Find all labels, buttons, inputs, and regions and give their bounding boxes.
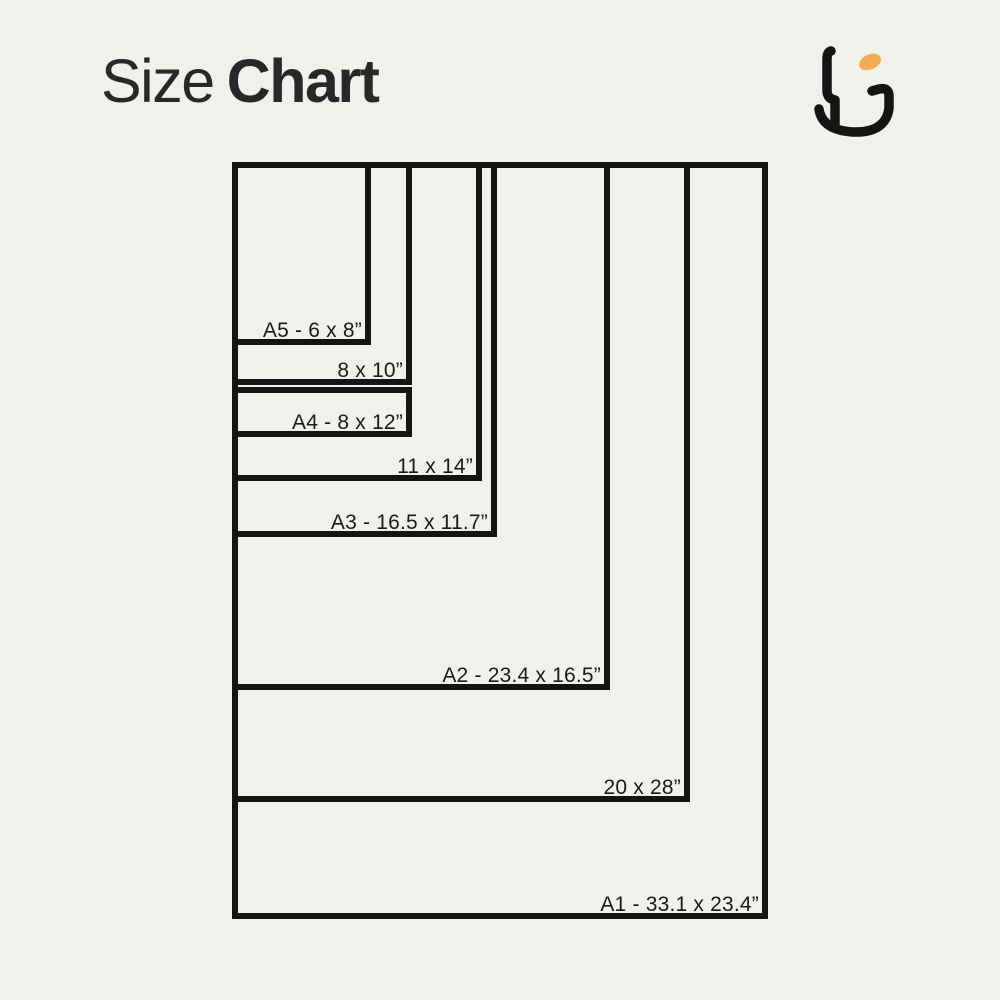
size-rect-a5 bbox=[232, 162, 371, 345]
size-label-a3: A3 - 16.5 x 11.7” bbox=[331, 512, 488, 533]
size-label-a5: A5 - 6 x 8” bbox=[263, 320, 362, 341]
size-label-8x10: 8 x 10” bbox=[337, 360, 403, 381]
size-label-20x28: 20 x 28” bbox=[604, 777, 681, 798]
size-label-a1: A1 - 33.1 x 23.4” bbox=[600, 894, 759, 915]
size-label-11x14: 11 x 14” bbox=[397, 456, 473, 477]
size-label-a4: A4 - 8 x 12” bbox=[292, 412, 403, 433]
size-label-a2: A2 - 23.4 x 16.5” bbox=[442, 665, 601, 686]
size-diagram: A1 - 33.1 x 23.4”20 x 28”A2 - 23.4 x 16.… bbox=[0, 0, 1000, 1000]
size-chart-page: SizeChart A1 - 33.1 x 23.4”20 x 28”A2 - … bbox=[0, 0, 1000, 1000]
